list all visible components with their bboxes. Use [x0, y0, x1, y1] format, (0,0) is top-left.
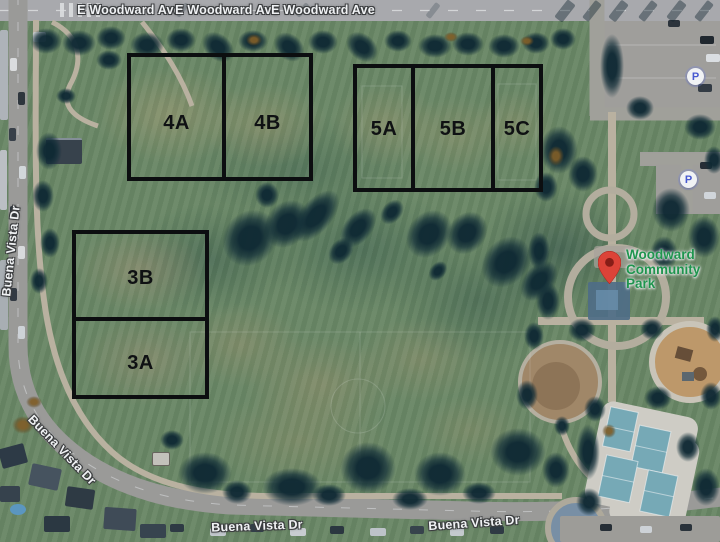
- car: [330, 526, 344, 534]
- parking-icon-letter: P: [692, 71, 699, 83]
- tree-autumn: [602, 424, 616, 438]
- poi-label-line1: Woodward: [626, 248, 720, 263]
- field-cell-4b: 4B: [226, 57, 309, 177]
- tree: [644, 386, 672, 410]
- car: [706, 54, 720, 62]
- tree: [704, 146, 720, 174]
- field-group-5: 5A 5B 5C: [353, 64, 543, 192]
- tree: [652, 188, 690, 232]
- field-label-4b: 4B: [254, 112, 281, 135]
- tree: [536, 282, 560, 320]
- poi-label-line2: Community Park: [626, 263, 720, 292]
- tree: [392, 488, 428, 510]
- field-label-5a: 5A: [371, 118, 398, 141]
- tree: [96, 26, 126, 50]
- tree: [488, 34, 520, 58]
- tree: [568, 318, 596, 342]
- field-cell-3a: 3A: [76, 321, 205, 395]
- car: [410, 526, 424, 534]
- tree: [30, 28, 62, 54]
- tree: [700, 382, 720, 410]
- car: [680, 524, 692, 531]
- satellite-map[interactable]: 4A 4B 5A 5B 5C 3B 3A E Woodward Ave E Wo…: [0, 0, 720, 542]
- field-cell-4a: 4A: [131, 57, 226, 177]
- car: [18, 92, 25, 105]
- field-cell-5a: 5A: [357, 68, 415, 188]
- car: [698, 84, 712, 92]
- tree: [490, 428, 546, 476]
- house-roof: [103, 507, 136, 531]
- tree: [222, 480, 252, 504]
- street-label-e-woodward-1: E Woodward Ave: [77, 3, 181, 17]
- house-roof: [65, 486, 96, 510]
- map-pin[interactable]: [598, 251, 621, 284]
- tree: [308, 30, 338, 54]
- tree: [516, 380, 538, 410]
- tree: [160, 430, 184, 450]
- building: [0, 150, 7, 210]
- tree: [340, 442, 396, 494]
- tree: [40, 228, 60, 258]
- field-label-5b: 5B: [440, 118, 467, 141]
- field-label-5c: 5C: [504, 118, 531, 141]
- tree: [384, 30, 412, 52]
- tree: [166, 28, 196, 52]
- tree: [262, 468, 322, 506]
- car: [18, 326, 25, 339]
- field-label-3a: 3A: [127, 352, 154, 375]
- field-label-3b: 3B: [127, 267, 154, 290]
- tree: [684, 114, 716, 140]
- tree: [62, 30, 96, 56]
- tree: [626, 96, 654, 120]
- field-cell-5c: 5C: [495, 68, 539, 188]
- car: [18, 246, 25, 259]
- field-label-4a: 4A: [163, 112, 190, 135]
- car: [700, 36, 714, 44]
- tree: [550, 28, 576, 50]
- field-cell-5b: 5B: [415, 68, 495, 188]
- tree: [32, 180, 54, 212]
- tree: [524, 322, 544, 350]
- parking-icon-letter: P: [685, 174, 692, 186]
- tree: [692, 468, 720, 506]
- tree: [706, 316, 720, 342]
- poi-label-woodward-community-park[interactable]: Woodward Community Park: [626, 248, 720, 292]
- tree: [640, 318, 664, 340]
- house-roof: [0, 486, 20, 502]
- tree: [542, 452, 570, 488]
- car: [704, 192, 716, 199]
- parking-icon[interactable]: P: [687, 68, 704, 85]
- car: [170, 524, 184, 532]
- parking-icon[interactable]: P: [680, 171, 697, 188]
- restroom-building: [152, 452, 170, 466]
- car: [10, 58, 17, 71]
- tree-autumn: [548, 146, 564, 166]
- tree: [576, 488, 602, 516]
- tree: [528, 232, 550, 270]
- car: [9, 128, 16, 141]
- tree: [554, 416, 570, 436]
- car: [19, 166, 26, 179]
- house-roof: [140, 524, 166, 538]
- car: [600, 524, 612, 531]
- street-label-e-woodward-3: E Woodward Ave: [271, 3, 375, 17]
- field-group-4: 4A 4B: [127, 53, 313, 181]
- tree: [36, 132, 62, 170]
- field-cell-3b: 3B: [76, 234, 205, 321]
- tree: [576, 424, 600, 480]
- tree: [462, 482, 496, 504]
- tree-autumn: [444, 32, 458, 42]
- tree: [584, 396, 606, 422]
- car: [370, 528, 386, 536]
- tree: [56, 88, 76, 104]
- building: [0, 30, 8, 120]
- house-roof: [44, 516, 70, 532]
- tree: [255, 182, 279, 208]
- car: [640, 526, 652, 533]
- swimming-pool: [10, 504, 26, 515]
- field-group-3: 3B 3A: [72, 230, 209, 399]
- tree-autumn: [520, 36, 534, 46]
- street-label-e-woodward-2: E Woodward Ave: [175, 3, 279, 17]
- tree: [600, 34, 624, 98]
- tree: [568, 156, 598, 192]
- tree: [96, 50, 122, 70]
- tree: [414, 452, 466, 496]
- tree-autumn: [26, 396, 42, 408]
- tree: [30, 268, 48, 294]
- tree: [312, 484, 346, 506]
- tree: [676, 432, 700, 462]
- tree-autumn: [246, 34, 262, 46]
